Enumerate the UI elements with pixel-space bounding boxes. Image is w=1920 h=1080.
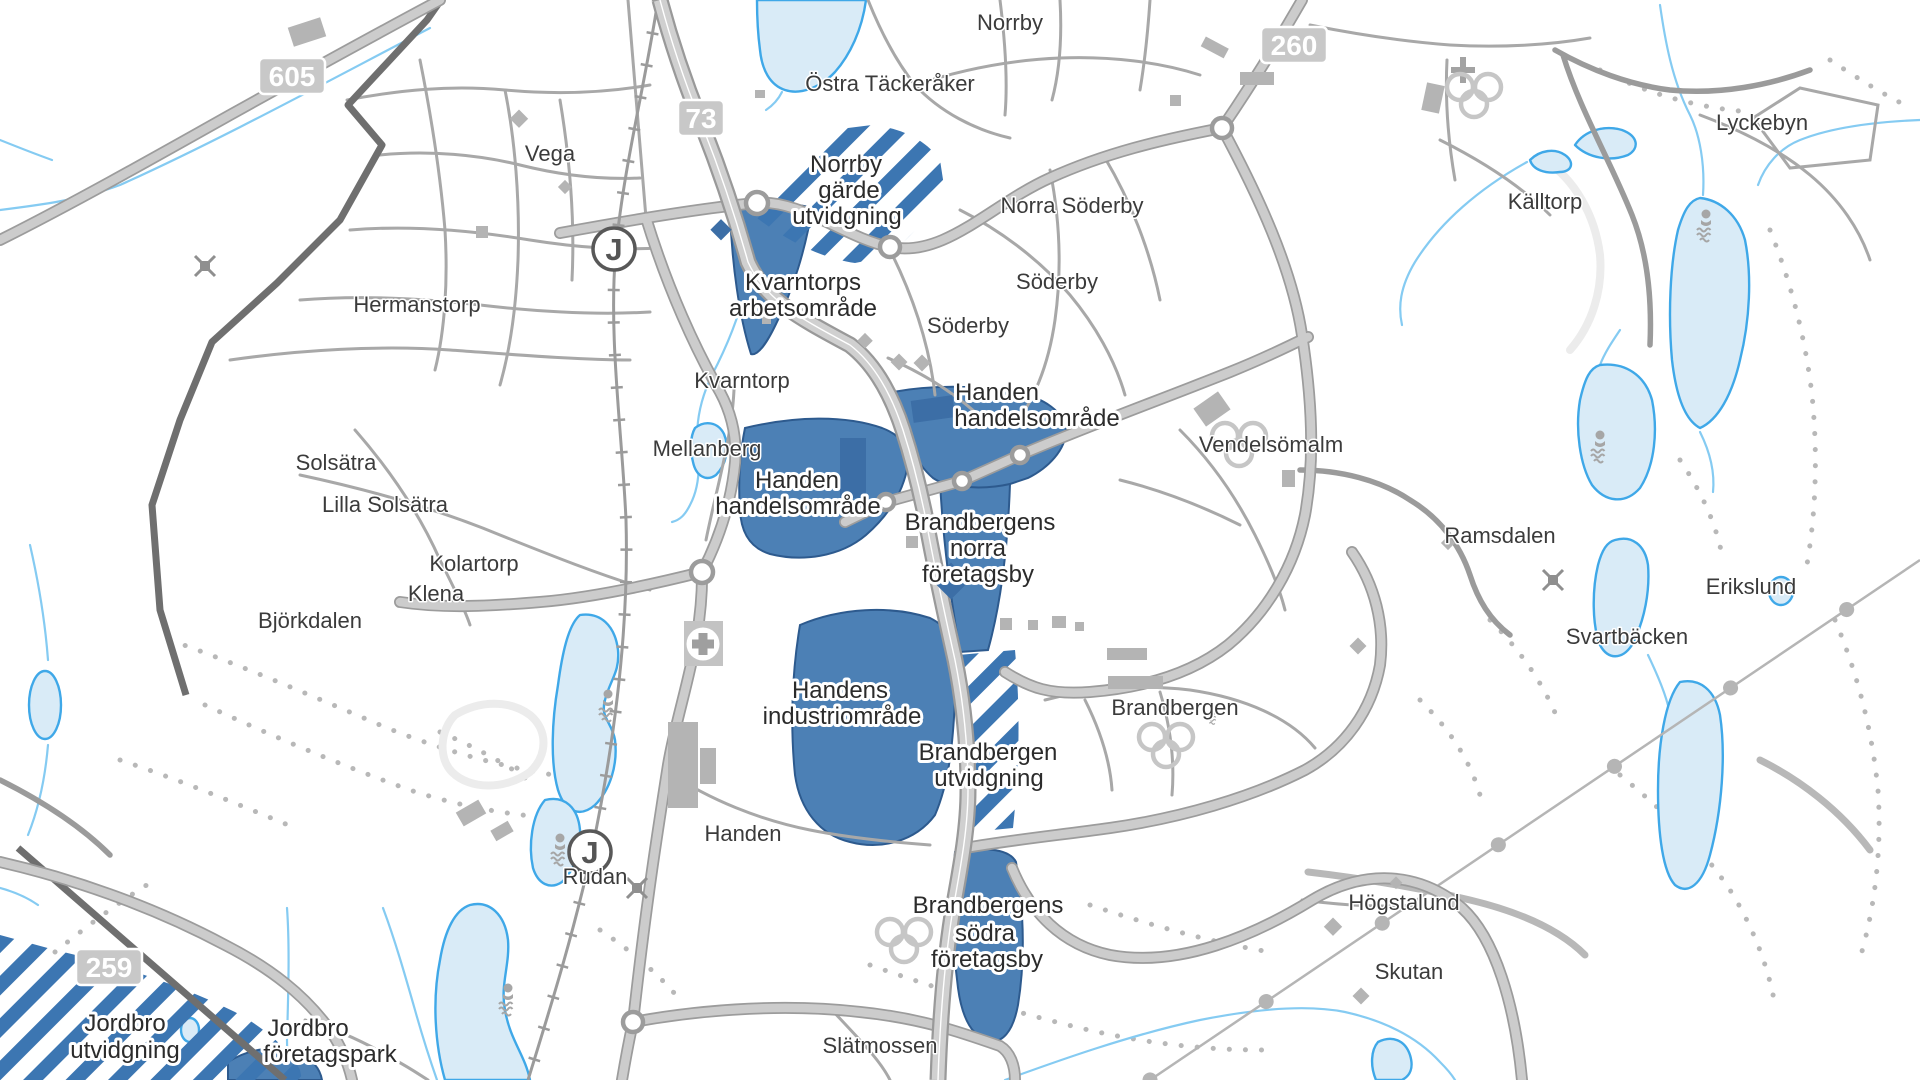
- pond: [29, 671, 61, 739]
- place-label: Lilla Solsätra: [322, 492, 449, 517]
- area-label-line: Handen: [955, 379, 1039, 406]
- area-label-kvarntorps-arbetsomrade: Kvarntorps arbetsområde: [729, 269, 877, 322]
- station-symbol: J: [605, 232, 622, 267]
- place-label: Mellanberg: [653, 436, 762, 461]
- place-label: Vega: [525, 141, 576, 166]
- area-label-line: Kvarntorps: [745, 269, 861, 296]
- area-label-line: södra: [955, 920, 1016, 947]
- lake: [1578, 365, 1655, 500]
- area-label-line: Brandbergen: [919, 739, 1058, 766]
- place-label: Solsätra: [296, 450, 377, 475]
- place-label: Björkdalen: [258, 608, 362, 633]
- area-label-line: arbetsområde: [729, 295, 877, 322]
- area-label-line: handelsområde: [715, 493, 880, 520]
- place-label: Rudan: [563, 864, 628, 889]
- road-number: 73: [685, 103, 716, 134]
- road-badge-73: 73: [678, 100, 724, 136]
- area-label-line: företagspark: [263, 1041, 397, 1068]
- area-label-line: utvidgning: [70, 1037, 179, 1064]
- place-label: Lyckebyn: [1716, 110, 1808, 135]
- road-number: 259: [86, 952, 133, 983]
- area-label-line: Handens: [792, 677, 888, 704]
- place-label: Skutan: [1375, 959, 1444, 984]
- place-label: Söderby: [1016, 269, 1098, 294]
- area-label-line: Jordbro: [84, 1010, 165, 1037]
- place-label: Vendelsömalm: [1199, 432, 1343, 457]
- place-label: Ramsdalen: [1444, 523, 1555, 548]
- place-label: Kolartorp: [429, 551, 518, 576]
- area-label-line: företagsby: [931, 946, 1043, 973]
- place-label: Handen: [704, 821, 781, 846]
- road-badge-259: 259: [76, 949, 142, 985]
- area-label-line: företagsby: [922, 561, 1034, 588]
- place-label: Kvarntorp: [694, 368, 789, 393]
- area-label-brandbergen-utvidgning: Brandbergen utvidgning: [919, 739, 1058, 792]
- map-viewport: J J 605 73 260 259 Norrby Östra Täckeråk…: [0, 0, 1920, 1080]
- place-label: Hermanstorp: [353, 292, 480, 317]
- area-label-jordbro-utvidgning: Jordbro utvidgning: [70, 1010, 179, 1064]
- road-number: 260: [1271, 30, 1318, 61]
- area-label-line: Norrby: [810, 151, 882, 178]
- area-label-line: Brandbergens: [913, 892, 1064, 919]
- place-label: Högstalund: [1348, 890, 1459, 915]
- place-label: Svartbäcken: [1566, 624, 1688, 649]
- hospital-icon: [684, 621, 723, 666]
- area-label-line: handelsområde: [954, 405, 1119, 432]
- area-label-line: utvidgning: [792, 203, 901, 230]
- lake: [1372, 1039, 1412, 1080]
- area-label-line: Handen: [755, 467, 839, 494]
- map-canvas: J J 605 73 260 259 Norrby Östra Täckeråk…: [0, 0, 1920, 1080]
- place-label: Norrby: [977, 10, 1043, 35]
- place-label: Norra Söderby: [1000, 193, 1143, 218]
- road-badge-605: 605: [259, 58, 325, 94]
- road-badge-260: 260: [1261, 27, 1327, 63]
- area-label-line: norra: [950, 535, 1007, 562]
- area-label-line: Jordbro: [267, 1015, 348, 1042]
- pond: [1530, 151, 1571, 173]
- place-label: Klena: [408, 581, 465, 606]
- place-label: Erikslund: [1706, 574, 1796, 599]
- area-label-line: industriområde: [763, 703, 922, 730]
- area-label-line: gärde: [818, 177, 879, 204]
- place-label: Källtorp: [1508, 189, 1583, 214]
- area-label-line: Brandbergens: [905, 509, 1056, 536]
- place-label: Brandbergen: [1111, 695, 1238, 720]
- area-label-line: utvidgning: [934, 765, 1043, 792]
- place-label: Slätmossen: [823, 1033, 938, 1058]
- place-label: Östra Täckeråker: [805, 71, 975, 96]
- place-label: Söderby: [927, 313, 1009, 338]
- rail-station-icon: J: [593, 228, 635, 270]
- road-number: 605: [269, 61, 316, 92]
